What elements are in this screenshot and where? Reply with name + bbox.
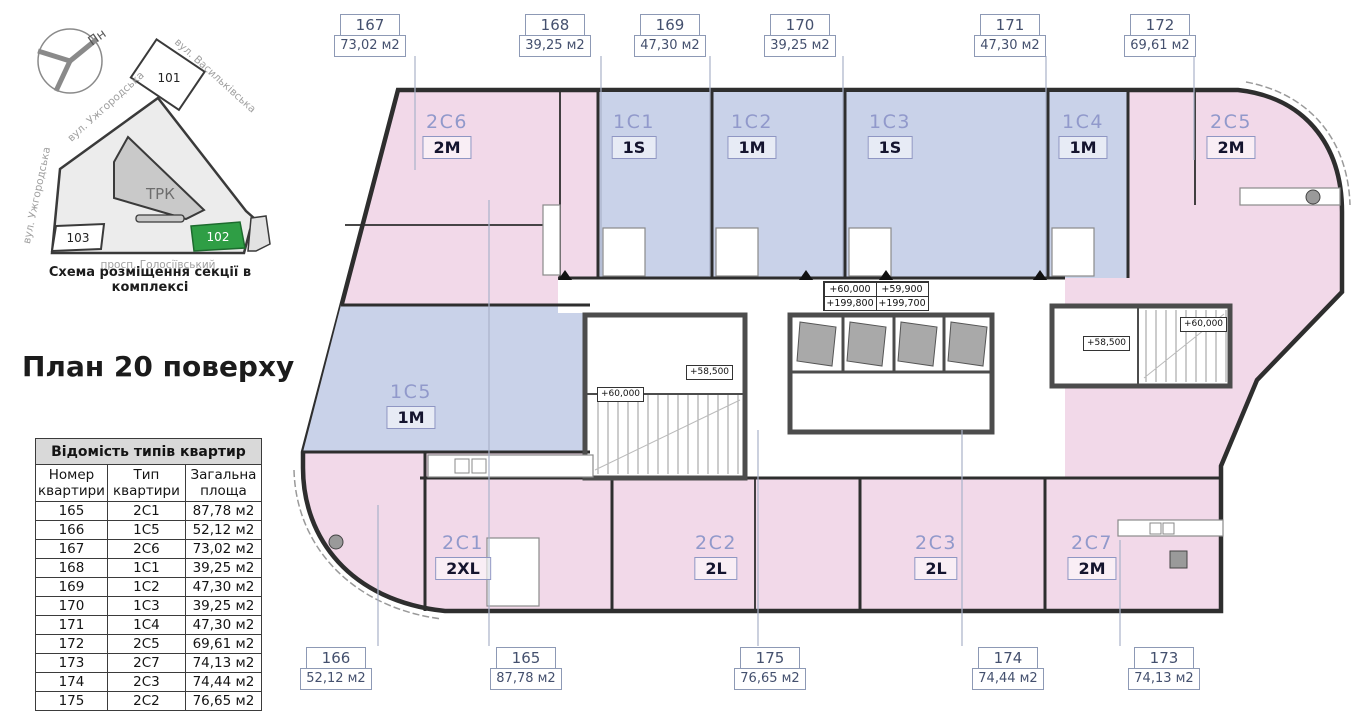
callout-area: 73,02 м2	[334, 35, 406, 57]
apartment-type-badge: 2M	[1067, 557, 1116, 580]
callout-number: 168	[525, 14, 585, 36]
apartment-label-1C5: 1C51M	[386, 380, 435, 429]
page: { "site_scheme": { "caption": "Схема роз…	[0, 0, 1360, 706]
apartment-callout-167: 16773,02 м2	[334, 14, 406, 57]
callout-number: 175	[740, 647, 800, 669]
elevation-value: +59,900	[876, 282, 929, 297]
apartment-callout-168: 16839,25 м2	[519, 14, 591, 57]
apartment-code: 1C2	[727, 110, 776, 134]
apartment-label-1C1: 1C11S	[612, 110, 657, 159]
apartment-code: 1C5	[386, 380, 435, 404]
column	[1306, 190, 1320, 204]
callout-area: 76,65 м2	[734, 668, 806, 690]
callout-number: 172	[1130, 14, 1190, 36]
apartment-callout-171: 17147,30 м2	[974, 14, 1046, 57]
apartment-label-2C1: 2C12XL	[435, 531, 491, 580]
elevation-mark: +58,500	[686, 365, 733, 380]
apartment-type-badge: 2M	[1206, 136, 1255, 159]
apartment-type-badge: 1M	[386, 406, 435, 429]
column	[329, 535, 343, 549]
apartment-label-1C4: 1C41M	[1058, 110, 1107, 159]
apartment-code: 2C1	[435, 531, 491, 555]
apartment-label-1C3: 1C31S	[868, 110, 913, 159]
apartment-type-badge: 1M	[727, 136, 776, 159]
callout-number: 171	[980, 14, 1040, 36]
apartment-callout-174: 17474,44 м2	[972, 647, 1044, 690]
apartment-code: 2C5	[1206, 110, 1255, 134]
callout-number: 167	[340, 14, 400, 36]
apartment-type-badge: 2XL	[435, 557, 491, 580]
apartment-label-2C6: 2C62M	[422, 110, 471, 159]
elevation-mark: +60,000	[597, 387, 644, 402]
apartment-label-2C7: 2C72M	[1067, 531, 1116, 580]
callout-area: 47,30 м2	[634, 35, 706, 57]
callout-area: 52,12 м2	[300, 668, 372, 690]
apartment-code: 2C6	[422, 110, 471, 134]
callout-number: 173	[1134, 647, 1194, 669]
apartment-code: 1C3	[868, 110, 913, 134]
callout-area: 74,44 м2	[972, 668, 1044, 690]
apartment-label-1C2: 1C21M	[727, 110, 776, 159]
apartment-callout-170: 17039,25 м2	[764, 14, 836, 57]
callout-number: 166	[306, 647, 366, 669]
apartment-code: 1C1	[612, 110, 657, 134]
apartment-callout-175: 17576,65 м2	[734, 647, 806, 690]
apartment-type-badge: 2L	[914, 557, 957, 580]
apartment-label-2C3: 2C32L	[914, 531, 957, 580]
apartment-callout-172: 17269,61 м2	[1124, 14, 1196, 57]
callout-number: 169	[640, 14, 700, 36]
apartment-type-badge: 2M	[422, 136, 471, 159]
elevation-value: +199,700	[876, 296, 929, 311]
elevation-value: +199,800	[824, 296, 877, 311]
apartment-callout-169: 16947,30 м2	[634, 14, 706, 57]
corridor	[558, 278, 1065, 313]
apartment-callout-166: 16652,12 м2	[300, 647, 372, 690]
apartment-code: 2C7	[1067, 531, 1116, 555]
callout-area: 47,30 м2	[974, 35, 1046, 57]
apartment-type-badge: 1M	[1058, 136, 1107, 159]
apartment-code: 2C2	[694, 531, 737, 555]
apartment-code: 1C4	[1058, 110, 1107, 134]
elevation-table: +60,000+59,900+199,800+199,700	[823, 281, 929, 311]
floor-plan-drawing	[0, 0, 1360, 706]
callout-area: 87,78 м2	[490, 668, 562, 690]
apartment-callout-173: 17374,13 м2	[1128, 647, 1200, 690]
elevation-mark: +58,500	[1083, 336, 1130, 351]
callout-area: 69,61 м2	[1124, 35, 1196, 57]
column	[1170, 551, 1187, 568]
callout-area: 39,25 м2	[764, 35, 836, 57]
apartment-type-badge: 2L	[694, 557, 737, 580]
callout-number: 165	[496, 647, 556, 669]
zone-blue-1c5	[303, 305, 590, 452]
callout-area: 74,13 м2	[1128, 668, 1200, 690]
apartment-type-badge: 1S	[612, 136, 657, 159]
apartment-label-2C2: 2C22L	[694, 531, 737, 580]
apartment-callout-165: 16587,78 м2	[490, 647, 562, 690]
callout-number: 174	[978, 647, 1038, 669]
callout-number: 170	[770, 14, 830, 36]
apartment-label-2C5: 2C52M	[1206, 110, 1255, 159]
callout-area: 39,25 м2	[519, 35, 591, 57]
apartment-code: 2C3	[914, 531, 957, 555]
elevation-value: +60,000	[824, 282, 877, 297]
elevation-mark: +60,000	[1180, 317, 1227, 332]
apartment-type-badge: 1S	[868, 136, 913, 159]
